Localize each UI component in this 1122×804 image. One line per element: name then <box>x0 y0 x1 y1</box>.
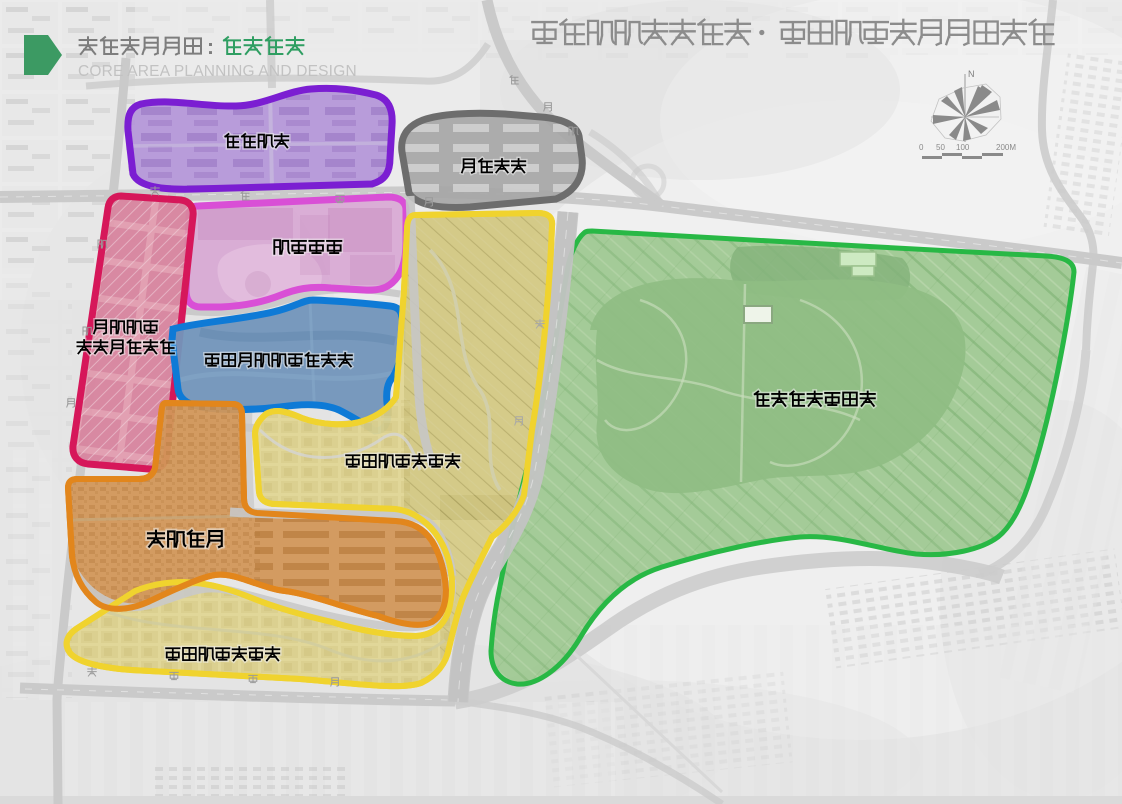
svg-text:200M: 200M <box>996 143 1016 152</box>
svg-text:100: 100 <box>956 143 970 152</box>
svg-text:CORE AREA PLANNING AND DESIGN: CORE AREA PLANNING AND DESIGN <box>78 63 357 80</box>
svg-text:N: N <box>968 69 975 79</box>
svg-text:0: 0 <box>919 143 924 152</box>
svg-text::: : <box>207 36 214 59</box>
svg-text:50: 50 <box>936 143 945 152</box>
